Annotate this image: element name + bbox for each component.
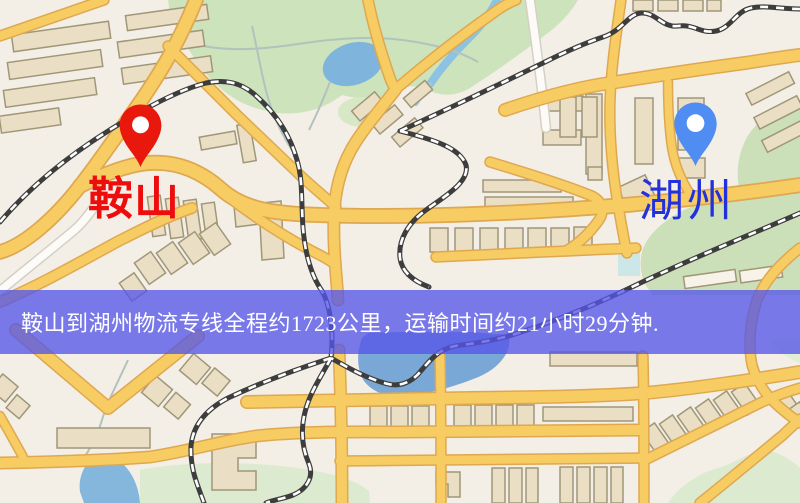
origin-pin-shape (120, 104, 162, 167)
origin-pin-icon (118, 103, 163, 169)
destination-pin-shape (674, 102, 716, 166)
route-info-banner: 鞍山到湖州物流专线全程约1723公里，运输时间约21小时29分钟. (0, 290, 800, 354)
map-background (0, 0, 800, 503)
origin-city-label: 鞍山 (88, 177, 180, 222)
map-screenshot: 鞍山 湖州 鞍山到湖州物流专线全程约1723公里，运输时间约21小时29分钟. (0, 0, 800, 503)
destination-city-label: 湖州 (639, 179, 735, 224)
route-info-text: 鞍山到湖州物流专线全程约1723公里，运输时间约21小时29分钟. (21, 306, 659, 338)
destination-pin-icon (672, 101, 719, 168)
